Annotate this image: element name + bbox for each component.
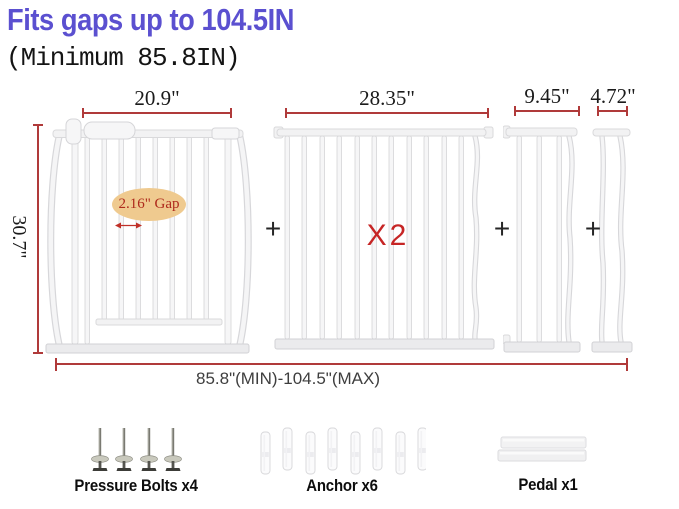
gate-handle <box>84 122 135 139</box>
page-title: Fits gaps up to 104.5IN <box>7 4 294 35</box>
extension-quantity-label: X2 <box>348 221 428 251</box>
main-gate-width-label: 20.9" <box>97 88 217 109</box>
total-range-dimension-line <box>55 363 628 365</box>
gate-post-cap <box>66 119 81 144</box>
main-gate-height-dimension-line <box>37 124 39 354</box>
plus-sign-3: + <box>579 215 607 243</box>
pressure-bolts-graphic <box>88 427 188 473</box>
product-diagram-image: Fits gaps up to 104.5IN (Minimum 85.8IN) <box>0 0 679 509</box>
extension-large-width-label: 28.35" <box>327 88 447 109</box>
total-range-label: 85.8"(MIN)-104.5"(MAX) <box>178 370 398 387</box>
pressure-bolts-label: Pressure Bolts x4 <box>74 477 197 494</box>
main-gate-height-label: 30.7" <box>9 202 29 272</box>
gap-callout-bubble: 2.16" Gap <box>112 188 186 221</box>
main-gate-graphic <box>40 113 255 358</box>
plus-sign-2: + <box>488 215 516 243</box>
pedal-label: Pedal x1 <box>486 476 609 493</box>
gate-latch <box>212 128 239 139</box>
extension-small-width-label: 4.72" <box>553 86 673 107</box>
pedal-graphic <box>497 436 589 464</box>
anchors-label: Anchor x6 <box>280 477 403 494</box>
extension-large-width-dimension-line <box>285 112 489 114</box>
plus-sign-1: + <box>259 215 287 243</box>
extension-small-width-dimension-line <box>597 110 628 112</box>
gap-double-arrow-icon <box>115 221 142 230</box>
anchors-graphic <box>253 427 426 475</box>
page-subtitle: (Minimum 85.8IN) <box>6 44 240 74</box>
main-gate-width-dimension-line <box>82 112 232 114</box>
extension-medium-width-dimension-line <box>514 110 580 112</box>
